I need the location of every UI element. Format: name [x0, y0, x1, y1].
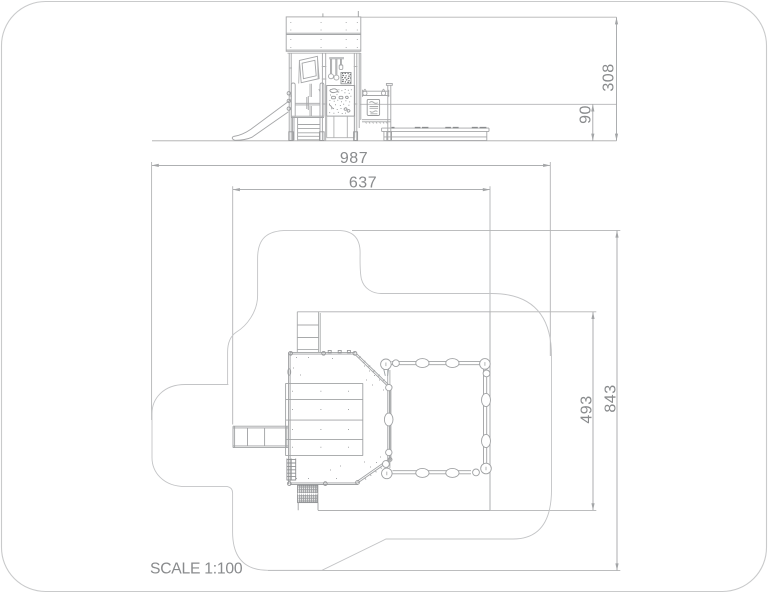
svg-text:843: 843 [603, 384, 620, 412]
svg-text:987: 987 [340, 150, 368, 167]
svg-text:493: 493 [579, 395, 596, 423]
svg-text:SCALE 1:100: SCALE 1:100 [150, 561, 243, 578]
svg-text:637: 637 [349, 174, 377, 191]
svg-text:90: 90 [578, 105, 595, 124]
svg-text:308: 308 [601, 63, 618, 91]
